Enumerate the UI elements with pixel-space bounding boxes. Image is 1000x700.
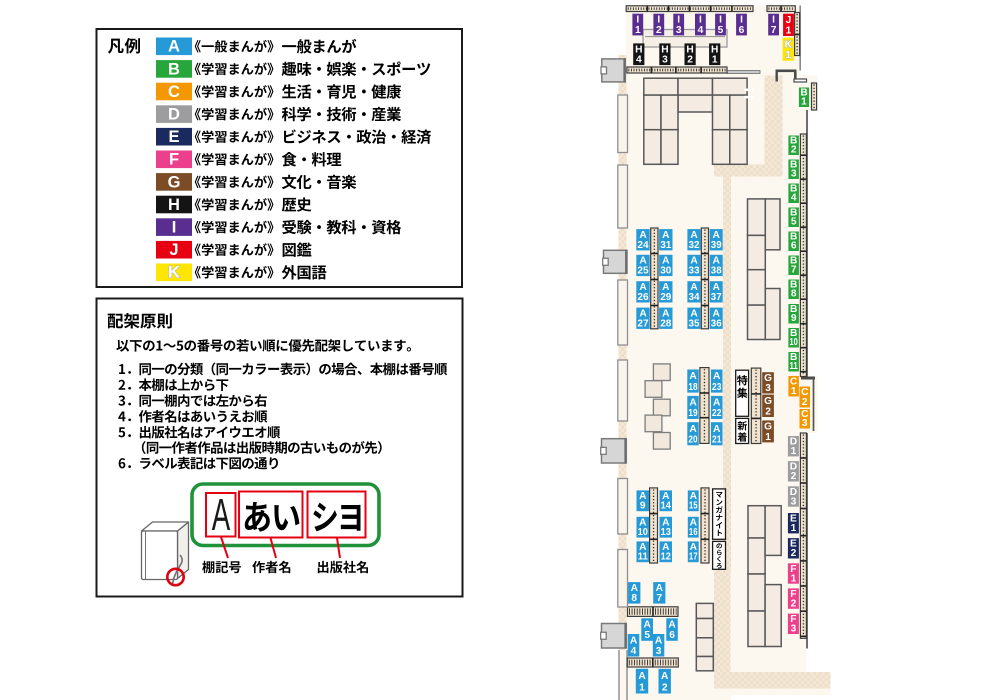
svg-text:8: 8 xyxy=(791,289,797,300)
svg-text:11: 11 xyxy=(790,361,799,372)
svg-text:J: J xyxy=(169,241,178,259)
svg-text:5: 5 xyxy=(791,217,797,228)
svg-text:J: J xyxy=(786,15,792,26)
svg-text:15: 15 xyxy=(689,501,698,512)
svg-text:36: 36 xyxy=(711,318,722,329)
svg-text:2: 2 xyxy=(791,548,797,559)
svg-text:38: 38 xyxy=(711,266,722,277)
svg-text:4: 4 xyxy=(631,646,637,657)
svg-text:A: A xyxy=(643,620,651,631)
svg-text:5: 5 xyxy=(644,630,650,641)
svg-text:1: 1 xyxy=(639,683,645,694)
svg-text:39: 39 xyxy=(711,240,722,251)
svg-text:3: 3 xyxy=(662,54,668,65)
svg-text:2: 2 xyxy=(687,54,693,65)
svg-text:A: A xyxy=(655,635,663,646)
svg-text:6: 6 xyxy=(791,241,797,252)
svg-text:F: F xyxy=(169,151,179,169)
svg-text:I: I xyxy=(172,219,177,237)
svg-text:A: A xyxy=(713,397,721,408)
svg-text:1: 1 xyxy=(791,573,797,584)
svg-text:A: A xyxy=(689,397,697,408)
svg-text:12: 12 xyxy=(661,552,672,563)
svg-text:A: A xyxy=(668,620,676,631)
svg-text:9: 9 xyxy=(640,501,646,512)
svg-text:35: 35 xyxy=(689,318,700,329)
svg-text:E: E xyxy=(168,128,179,146)
svg-text:13: 13 xyxy=(661,527,672,538)
svg-text:A: A xyxy=(168,38,180,56)
svg-text:K: K xyxy=(168,264,180,282)
svg-text:26: 26 xyxy=(637,292,649,303)
svg-text:2: 2 xyxy=(802,397,808,408)
svg-text:1: 1 xyxy=(785,50,791,61)
svg-text:G: G xyxy=(764,396,772,407)
svg-text:A: A xyxy=(661,671,669,682)
svg-text:5: 5 xyxy=(718,25,724,36)
svg-text:1: 1 xyxy=(786,25,792,36)
svg-text:11: 11 xyxy=(638,552,649,563)
svg-text:25: 25 xyxy=(637,266,649,277)
svg-text:3: 3 xyxy=(656,646,662,657)
svg-text:32: 32 xyxy=(689,240,700,251)
svg-text:3: 3 xyxy=(791,169,797,180)
svg-text:H: H xyxy=(168,196,180,214)
svg-text:17: 17 xyxy=(689,552,698,563)
svg-text:A: A xyxy=(689,424,697,435)
svg-text:33: 33 xyxy=(689,266,700,277)
svg-text:22: 22 xyxy=(712,408,722,419)
svg-text:B: B xyxy=(168,60,180,78)
svg-text:9: 9 xyxy=(791,313,797,324)
svg-text:3: 3 xyxy=(791,496,797,507)
svg-text:2: 2 xyxy=(765,406,771,417)
svg-text:1: 1 xyxy=(791,523,797,534)
svg-text:A: A xyxy=(713,424,721,435)
svg-text:27: 27 xyxy=(637,318,649,329)
svg-text:23: 23 xyxy=(712,382,722,393)
svg-text:A: A xyxy=(689,371,697,382)
svg-text:37: 37 xyxy=(711,292,722,303)
svg-text:4: 4 xyxy=(791,193,797,204)
svg-text:28: 28 xyxy=(660,318,672,329)
svg-text:7: 7 xyxy=(791,265,797,276)
svg-text:2: 2 xyxy=(791,471,797,482)
svg-text:7: 7 xyxy=(656,593,662,604)
svg-text:6: 6 xyxy=(739,25,745,36)
svg-text:6: 6 xyxy=(669,630,675,641)
svg-text:3: 3 xyxy=(765,383,771,394)
svg-text:8: 8 xyxy=(631,593,637,604)
svg-text:1: 1 xyxy=(635,25,641,36)
svg-text:1: 1 xyxy=(801,97,807,108)
svg-text:3: 3 xyxy=(802,418,808,429)
svg-text:30: 30 xyxy=(660,266,672,277)
svg-text:D: D xyxy=(168,106,180,124)
svg-text:2: 2 xyxy=(662,683,668,694)
svg-text:20: 20 xyxy=(688,435,697,446)
svg-text:21: 21 xyxy=(712,435,722,446)
svg-text:3: 3 xyxy=(791,624,797,635)
svg-text:3: 3 xyxy=(676,25,682,36)
svg-text:1: 1 xyxy=(765,432,771,443)
svg-text:A: A xyxy=(713,371,721,382)
svg-text:C: C xyxy=(168,83,180,101)
svg-text:31: 31 xyxy=(660,240,672,251)
svg-text:2: 2 xyxy=(656,25,662,36)
svg-text:7: 7 xyxy=(771,25,777,36)
svg-text:A: A xyxy=(638,671,646,682)
svg-text:K: K xyxy=(785,39,793,50)
svg-text:10: 10 xyxy=(790,337,799,348)
svg-text:18: 18 xyxy=(688,382,697,393)
svg-text:10: 10 xyxy=(638,527,649,538)
svg-text:1: 1 xyxy=(712,54,718,65)
svg-text:4: 4 xyxy=(636,54,642,65)
svg-text:1: 1 xyxy=(791,386,797,397)
svg-text:14: 14 xyxy=(661,501,672,512)
svg-text:34: 34 xyxy=(689,292,700,303)
svg-text:29: 29 xyxy=(660,292,672,303)
svg-text:4: 4 xyxy=(698,25,704,36)
svg-text:19: 19 xyxy=(688,408,697,419)
svg-text:1: 1 xyxy=(791,446,797,457)
svg-text:2: 2 xyxy=(791,145,797,156)
svg-text:2: 2 xyxy=(791,598,797,609)
svg-text:A: A xyxy=(630,635,638,646)
svg-text:16: 16 xyxy=(689,527,698,538)
svg-text:G: G xyxy=(168,173,181,191)
svg-text:24: 24 xyxy=(637,240,649,251)
